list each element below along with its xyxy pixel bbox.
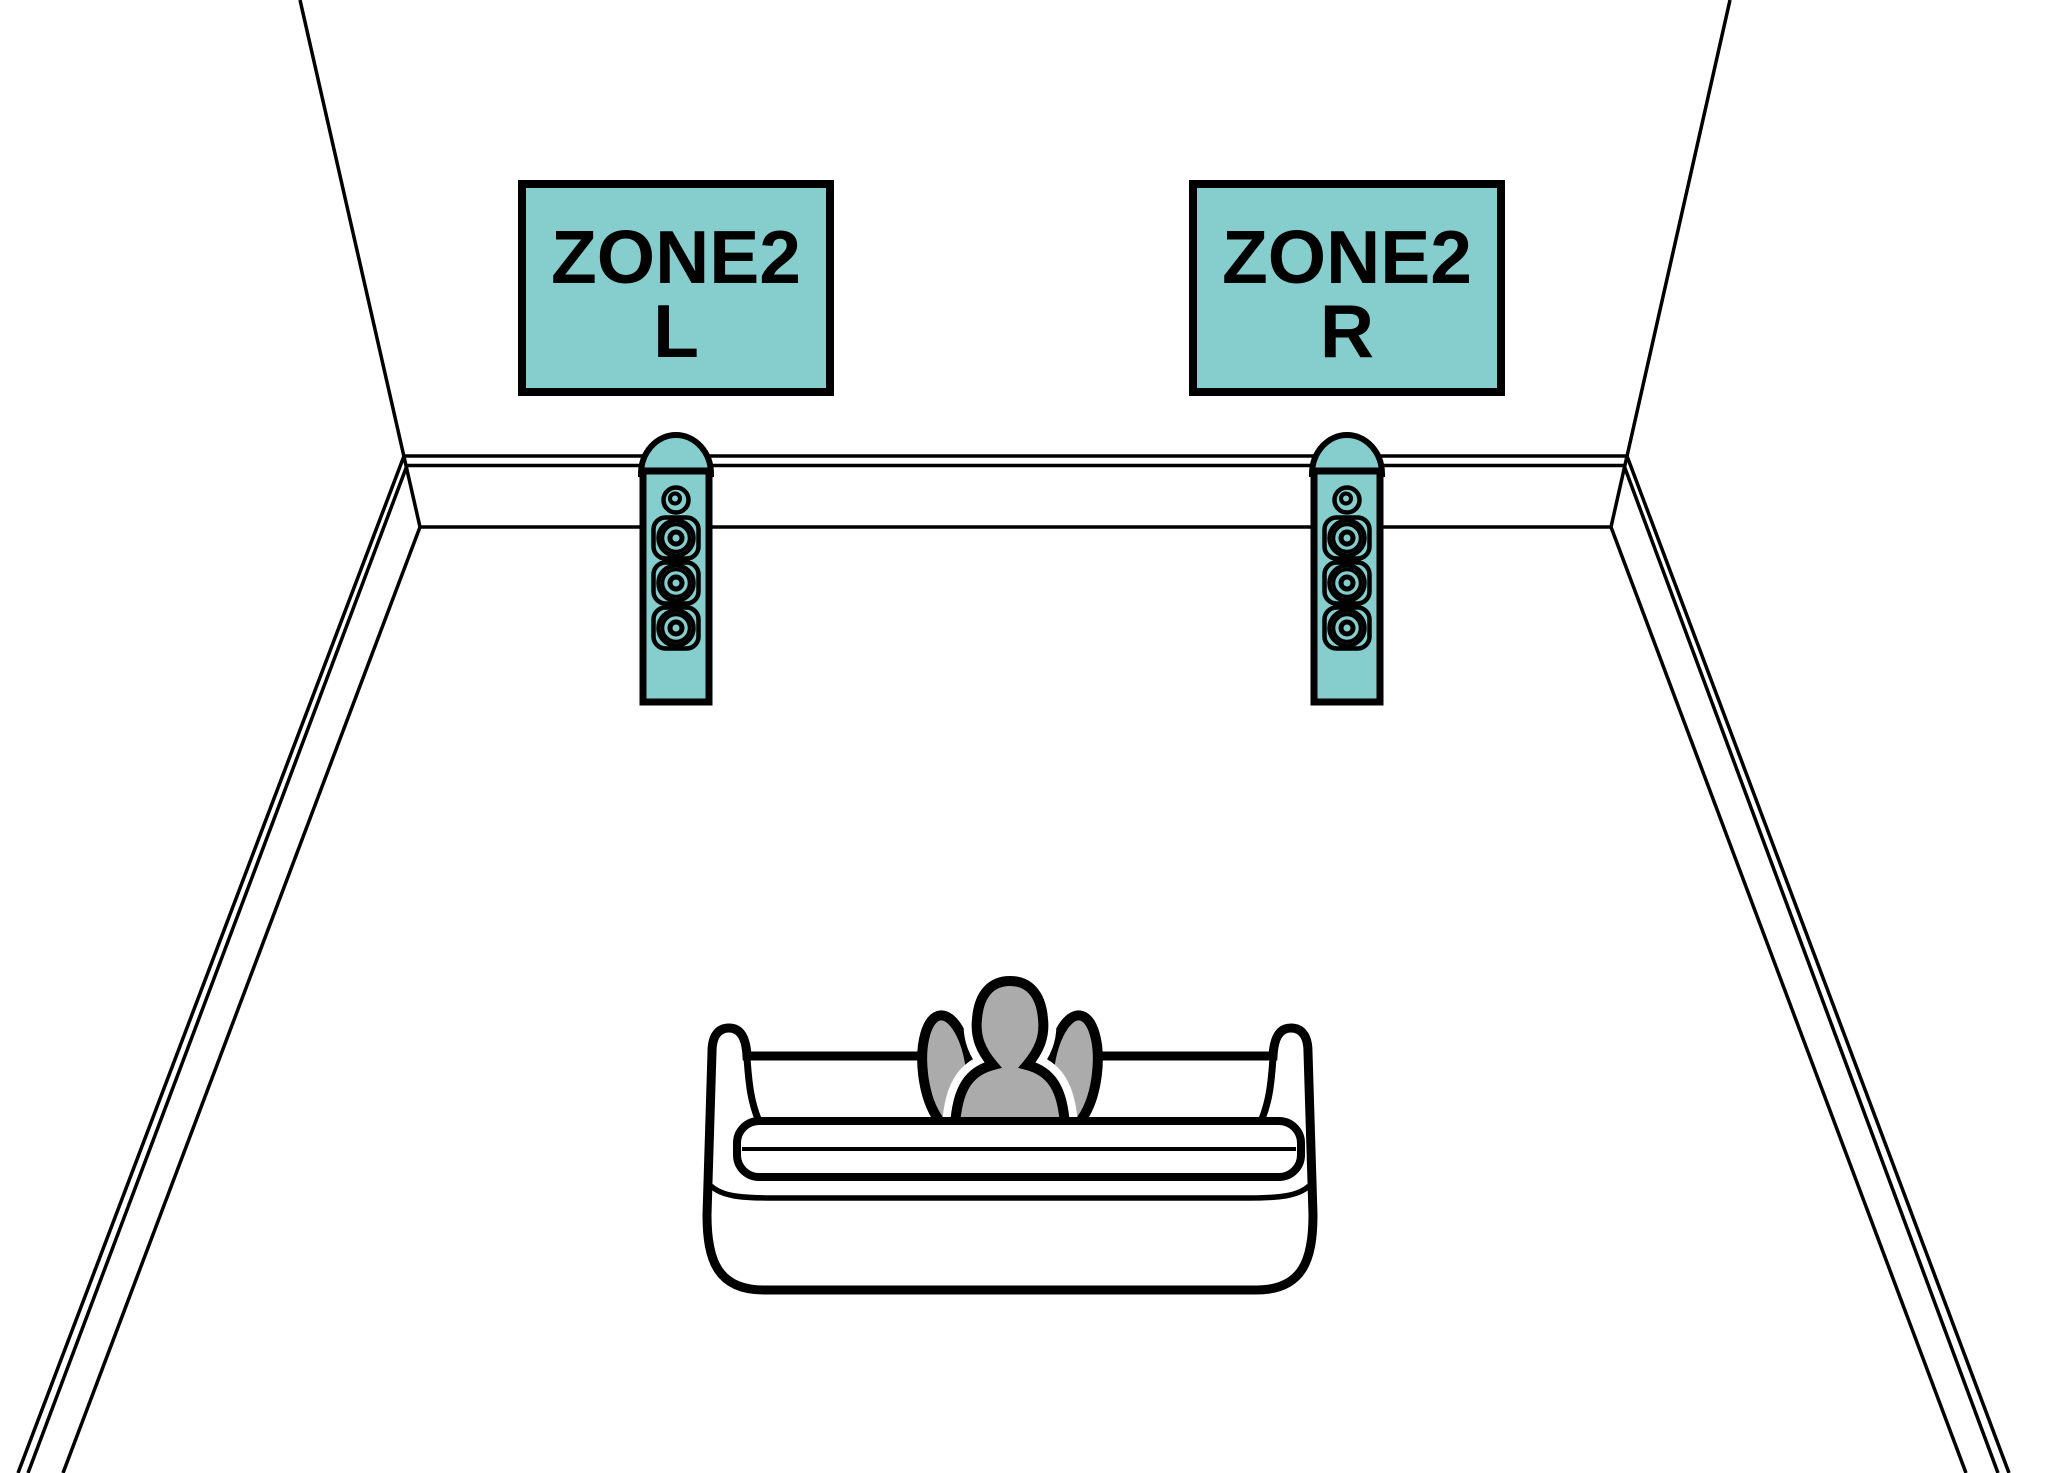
left-wall-corner-edge xyxy=(300,0,420,527)
room-diagram: ZONE2 L ZONE2 R xyxy=(0,0,2051,1473)
right-wall-baseboard-top-line xyxy=(1624,466,1998,1473)
zone2-left-label-line2: L xyxy=(653,289,699,373)
zone2-left-label-line1: ZONE2 xyxy=(551,215,801,299)
zone2-left-speaker xyxy=(641,435,711,702)
zone2-left-label: ZONE2 L xyxy=(522,184,830,392)
person-listener-icon xyxy=(916,981,1104,1132)
right-wall-floor-line xyxy=(1627,456,2009,1473)
right-wall-baseboard-bottom-line xyxy=(1611,527,1966,1473)
sofa-seat-cushion xyxy=(737,1121,1301,1177)
zone2-right-speaker xyxy=(1312,435,1382,702)
left-wall-floor-line xyxy=(18,456,404,1473)
left-wall-baseboard-bottom-line xyxy=(63,527,420,1473)
left-wall-baseboard-top-line xyxy=(28,466,407,1473)
zone2-right-label: ZONE2 R xyxy=(1193,184,1501,392)
zone2-right-label-line2: R xyxy=(1320,289,1374,373)
zone2-right-label-line1: ZONE2 xyxy=(1222,215,1472,299)
right-wall-corner-edge xyxy=(1611,0,1730,527)
